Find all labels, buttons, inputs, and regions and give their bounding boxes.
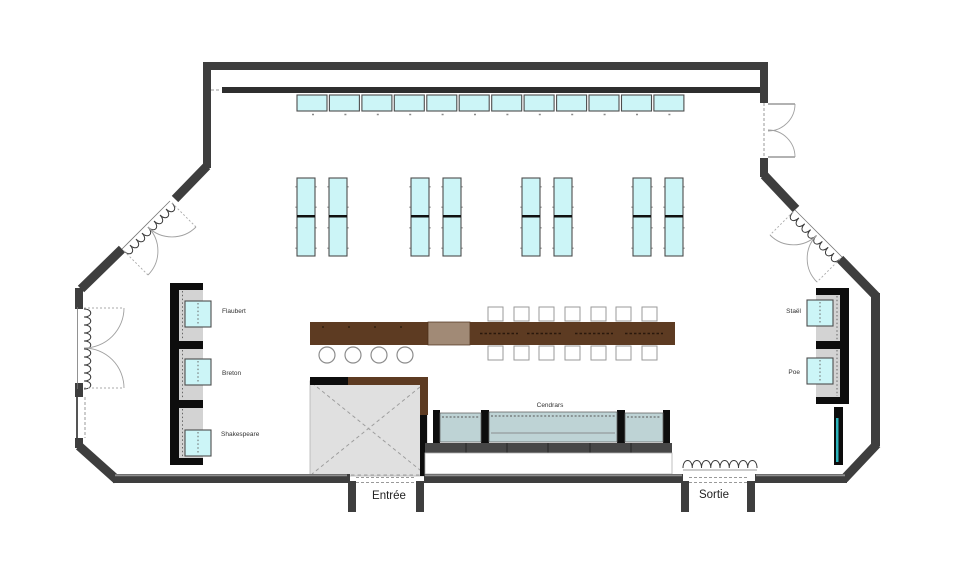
entree-jamb-left [348, 481, 356, 512]
floor-plan: Flaubert Breton Shakespeare Staël Poe Ce… [0, 0, 969, 570]
window-counter [211, 87, 765, 93]
table-column [410, 178, 430, 256]
bench-cendrars [425, 410, 672, 474]
sortie-jamb-right [747, 481, 755, 512]
service-area [310, 377, 428, 476]
label-shakespeare: Shakespeare [221, 431, 260, 438]
table-column [632, 178, 652, 256]
table-column [328, 178, 348, 256]
table-column [442, 178, 462, 256]
table-column [521, 178, 541, 256]
label-poe: Poe [788, 369, 800, 376]
label-breton: Breton [222, 370, 242, 377]
sortie-jamb-left [681, 481, 689, 512]
wall-top [203, 62, 768, 70]
left-booths [170, 283, 211, 465]
label-cendrars: Cendrars [537, 402, 564, 409]
table-column [553, 178, 573, 256]
label-sortie: Sortie [699, 489, 729, 501]
wall-right [871, 293, 880, 446]
label-stael: Staël [786, 308, 801, 315]
floor-background [0, 0, 969, 570]
table-column [664, 178, 684, 256]
label-flaubert: Flaubert [222, 308, 246, 315]
cabinet [834, 407, 843, 465]
label-entree: Entrée [372, 490, 406, 502]
table-column [296, 178, 316, 256]
entree-jamb-right [416, 481, 424, 512]
